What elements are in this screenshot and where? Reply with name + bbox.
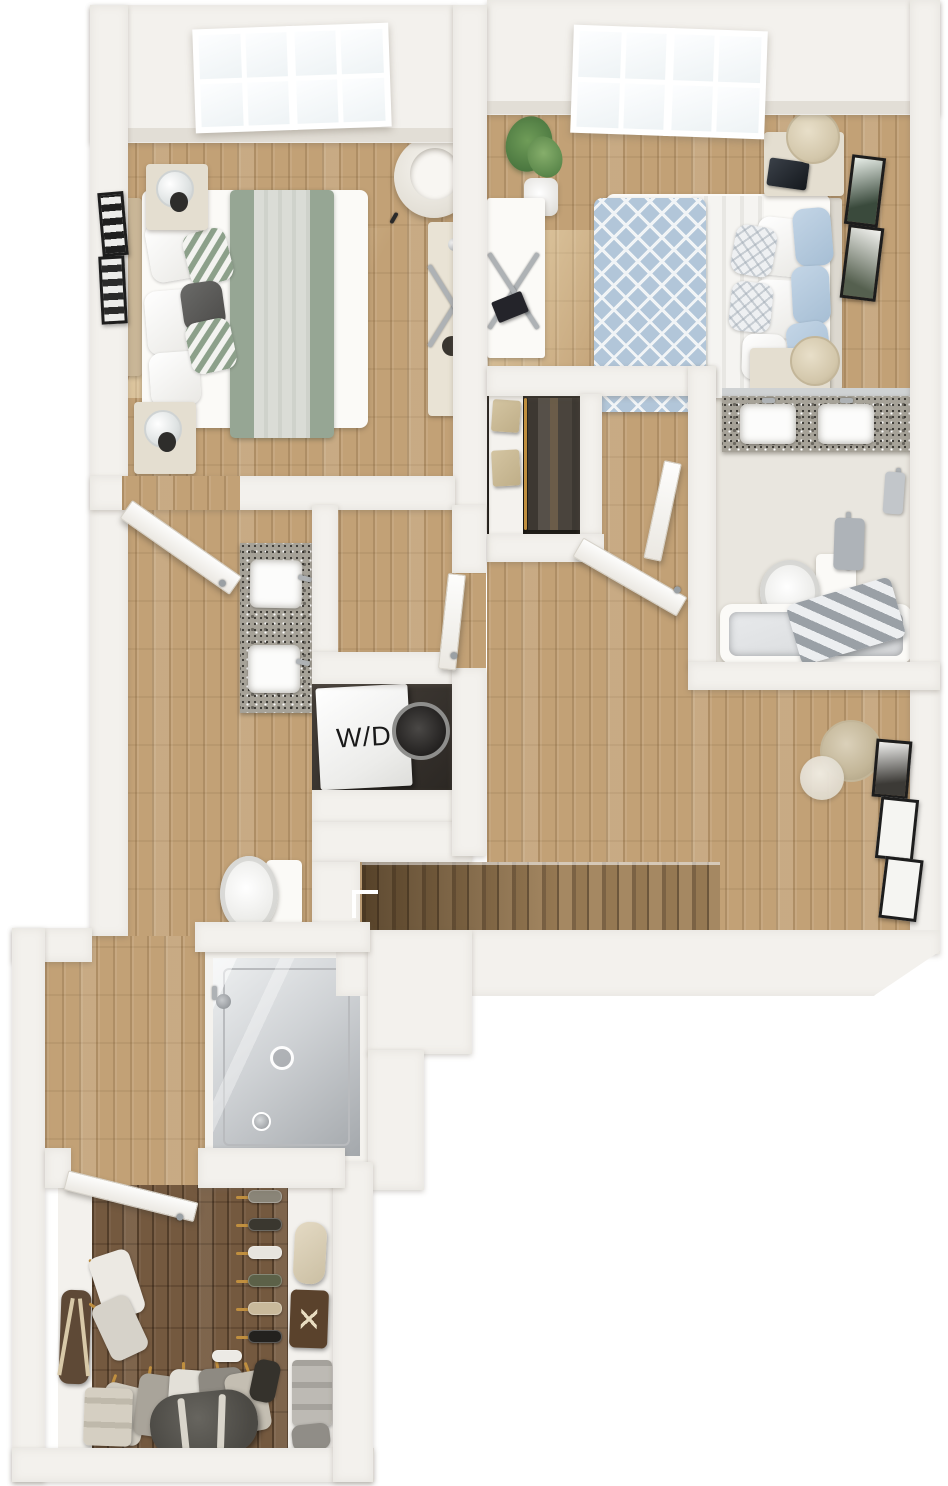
blue-pillow: [791, 265, 832, 325]
stair-stringer-mark: [352, 890, 356, 918]
monogram-handbag: [289, 1289, 329, 1348]
faucet: [840, 398, 853, 403]
lamp-finial: [158, 432, 176, 452]
wall: [312, 822, 472, 862]
shower-head: [216, 994, 231, 1009]
hanging-clothes: [528, 398, 580, 530]
washer-dryer-label: W/D: [315, 684, 412, 791]
sink: [250, 560, 303, 609]
blanket-stripe: [254, 190, 310, 438]
door-knob: [217, 578, 227, 588]
window: [192, 23, 392, 134]
floor-lamp-base: [800, 756, 844, 800]
toilet-bowl: [220, 856, 278, 932]
wall: [312, 652, 458, 684]
door-knob: [450, 652, 458, 660]
wall: [368, 1050, 424, 1190]
window-pane: [576, 81, 619, 128]
shoe-pair: [248, 1330, 282, 1343]
floor-plan: W/D: [0, 0, 948, 1486]
wall: [195, 922, 370, 952]
drum-lamp: [790, 336, 840, 386]
window-pane: [247, 81, 291, 126]
wall: [487, 366, 716, 396]
wall: [12, 1448, 374, 1482]
towel-stack: [292, 1360, 332, 1426]
shoe-pair: [248, 1274, 282, 1287]
wall: [12, 928, 45, 1482]
window-pane: [718, 36, 761, 83]
shoe-pair: [248, 1302, 282, 1315]
sink: [248, 645, 300, 693]
bath-towel: [833, 517, 865, 570]
monogram-duffel: [58, 1290, 91, 1385]
folded-stack: [83, 1387, 133, 1447]
window-pane: [342, 77, 386, 122]
wall: [452, 505, 486, 573]
wall: [688, 662, 940, 690]
stair-nosing: [362, 862, 720, 865]
duffel-strap: [177, 1398, 190, 1454]
wall: [312, 505, 338, 655]
wall: [90, 5, 128, 936]
window-pane: [340, 29, 384, 74]
window-pane: [672, 34, 715, 81]
window-pane: [200, 82, 244, 127]
lamp-finial: [170, 192, 188, 212]
wall: [198, 1148, 345, 1188]
framed-art: [98, 255, 128, 324]
duffel-strap: [217, 1394, 226, 1450]
hand-towel: [883, 471, 906, 514]
desk: [487, 198, 545, 358]
shoe-pair: [248, 1218, 282, 1231]
framed-art: [97, 191, 128, 257]
window: [570, 25, 768, 140]
handbag-clasp: [301, 1308, 318, 1331]
shower-drain: [270, 1046, 294, 1070]
wall: [368, 930, 472, 1054]
bed-blanket-sage: [230, 190, 334, 438]
shoe-pair: [248, 1190, 282, 1203]
window-pane: [578, 31, 621, 78]
window-pane: [670, 85, 713, 132]
window-pane: [625, 32, 668, 79]
storage-box: [491, 399, 521, 433]
picture-frame: [872, 739, 913, 800]
shoe-pair: [212, 1350, 242, 1362]
wall: [333, 1162, 373, 1482]
window-pane: [295, 79, 339, 124]
duffel-strap: [78, 1298, 90, 1376]
storage-box: [491, 449, 521, 486]
wall: [452, 668, 486, 856]
blue-pillow: [792, 206, 835, 267]
staircase: [362, 862, 720, 934]
patterned-pillow: [728, 280, 775, 334]
shoe-pair: [248, 1246, 282, 1259]
picture-frame: [875, 796, 919, 862]
window-pane: [198, 34, 242, 79]
picture-frame: [878, 856, 923, 922]
stair-shadow: [362, 862, 720, 934]
vanity-mirror: [722, 388, 912, 396]
window-pane: [717, 86, 760, 133]
wall: [688, 366, 716, 668]
window-pane: [623, 83, 666, 130]
shower-valve: [252, 1112, 271, 1131]
sink: [818, 404, 874, 444]
wall: [580, 394, 602, 536]
wall: [312, 790, 458, 824]
clutch-bag: [292, 1221, 327, 1285]
clothes-rod: [524, 398, 527, 530]
window-pane: [246, 32, 290, 77]
faucet: [762, 398, 775, 403]
sink: [740, 404, 796, 444]
drum-lamp: [786, 110, 840, 164]
wall: [453, 5, 487, 529]
window-pane: [293, 30, 337, 75]
